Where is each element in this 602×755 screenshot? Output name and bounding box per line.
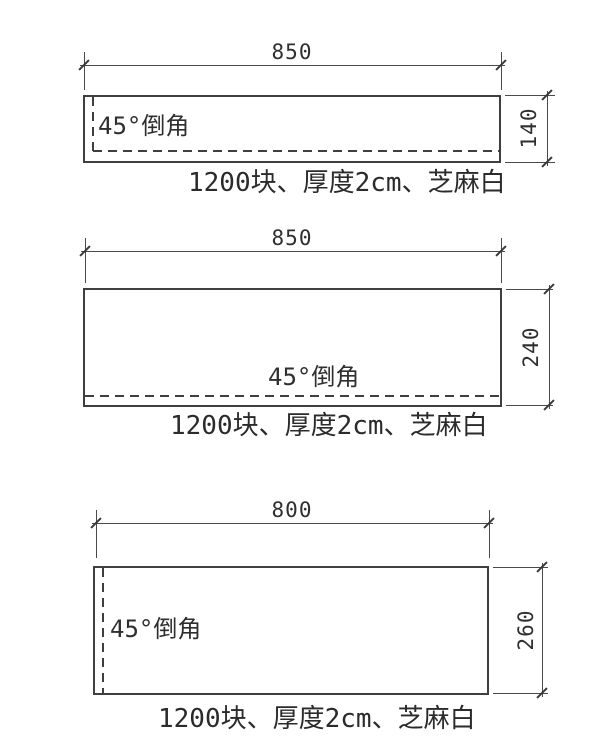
extension-line [501,238,502,283]
extension-line [96,510,97,558]
panel-spec-caption: 1200块、厚度2cm、芝麻白 [158,704,476,734]
width-dimension-label: 850 [252,227,332,249]
extension-line [501,52,502,90]
panel-spec-caption: 1200块、厚度2cm、芝麻白 [188,168,506,198]
dimension-line [547,91,548,166]
chamfer-note: 45°倒角 [268,363,359,391]
height-dimension-label: 240 [519,307,543,387]
dimension-line [542,563,543,697]
width-dimension-label: 850 [252,41,332,63]
chamfer-dashed-line-horizontal [93,150,499,152]
height-dimension-label: 140 [517,88,541,168]
chamfer-note: 45°倒角 [98,112,189,140]
height-dimension-label: 260 [514,590,538,670]
panel-spec-caption: 1200块、厚度2cm、芝麻白 [170,411,488,441]
dimension-line [80,65,505,66]
dimension-line [549,285,550,409]
cad-drawing-canvas: 850 45°倒角 140 1200块、厚度2cm、芝麻白 850 45°倒角 [0,0,602,755]
width-dimension-label: 800 [252,499,332,521]
chamfer-dashed-line-horizontal [85,395,500,397]
extension-line [84,52,85,90]
dimension-line [81,251,505,252]
chamfer-dashed-line-vertical [102,568,104,693]
extension-line [85,238,86,283]
dimension-line [92,523,493,524]
chamfer-dashed-line-vertical [92,97,94,152]
chamfer-note: 45°倒角 [110,615,201,643]
extension-line [489,510,490,558]
